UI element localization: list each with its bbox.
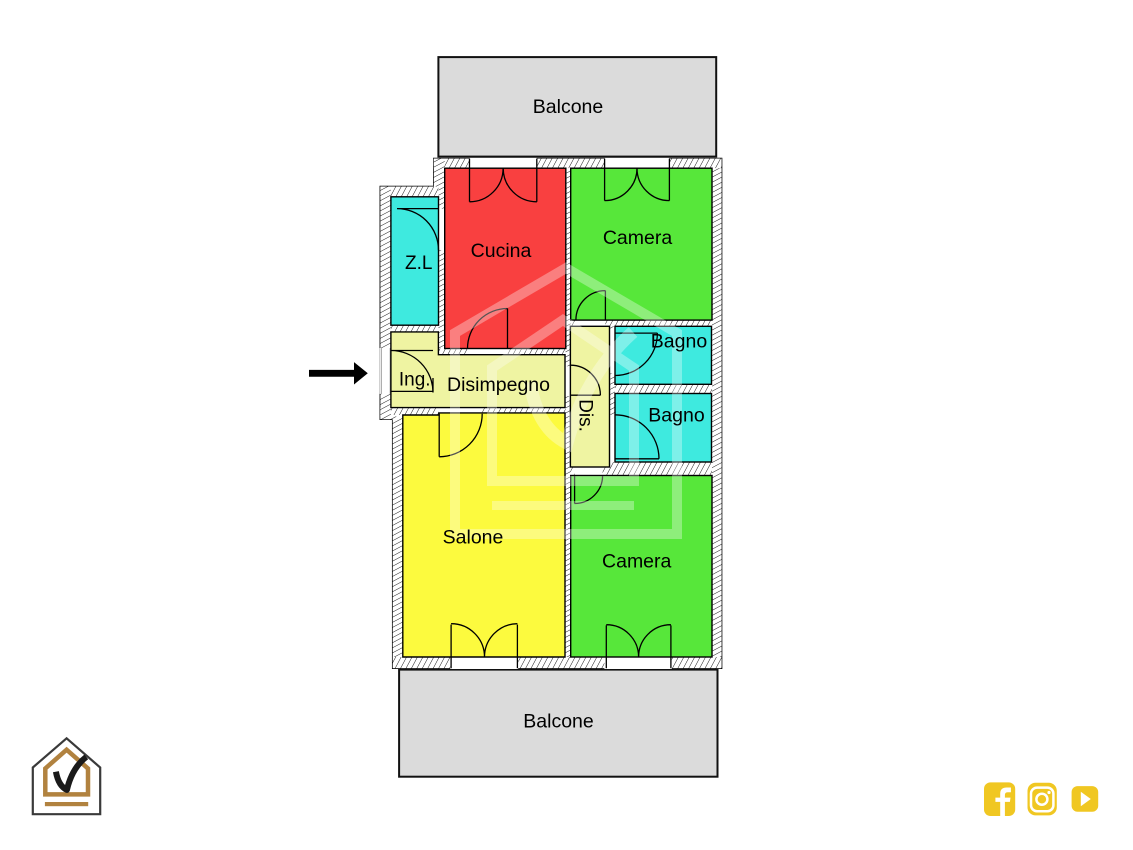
svg-text:Salone: Salone — [443, 527, 504, 549]
svg-text:Disimpegno: Disimpegno — [447, 374, 550, 396]
svg-text:Cucina: Cucina — [471, 240, 532, 262]
svg-text:Ing.: Ing. — [399, 370, 431, 391]
svg-text:Camera: Camera — [603, 227, 673, 249]
svg-text:Bagno: Bagno — [648, 405, 705, 427]
svg-text:Dis.: Dis. — [575, 399, 596, 432]
svg-text:Balcone: Balcone — [533, 96, 603, 118]
svg-text:Z.L: Z.L — [405, 253, 432, 274]
svg-text:Camera: Camera — [602, 551, 672, 573]
svg-text:Balcone: Balcone — [523, 711, 593, 733]
svg-text:Bagno: Bagno — [651, 331, 708, 353]
